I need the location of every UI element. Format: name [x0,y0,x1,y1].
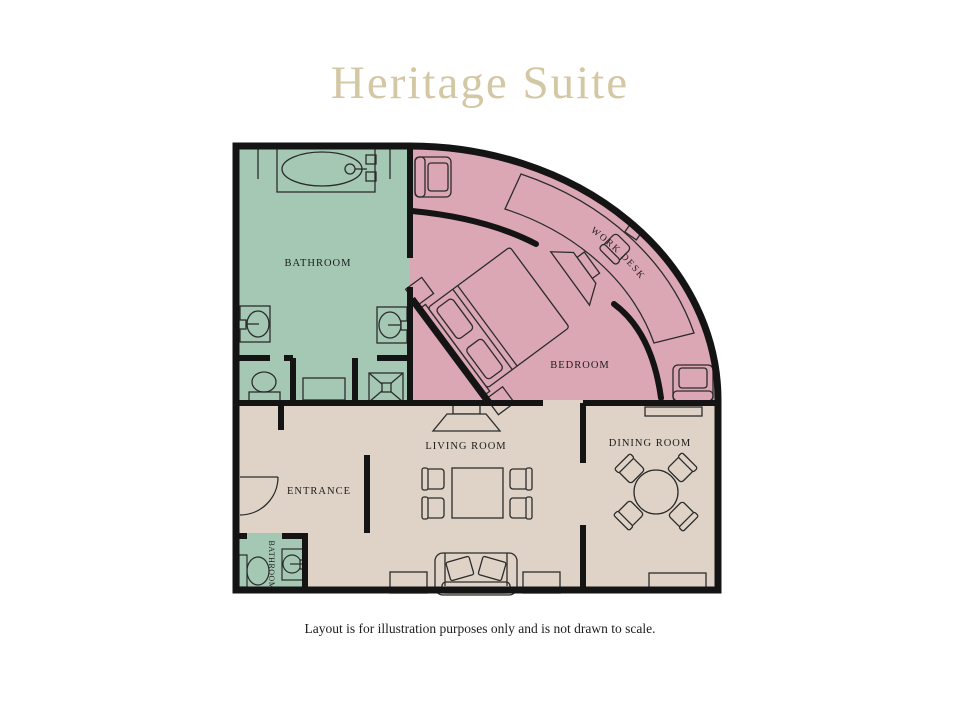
guest-bathroom-label: BATHROOM [267,541,276,590]
dining-room-label: DINING ROOM [609,438,691,449]
bedroom-armchair-bottom [673,365,713,401]
floor-plan-page: Heritage Suite [0,0,960,720]
living-chair [510,468,532,490]
floor-plan-svg: BATHROOM BEDROOM LIVING ROOM DINING ROOM… [0,0,960,720]
bathroom-label: BATHROOM [285,258,352,269]
living-chair [422,468,444,490]
bedroom-label: BEDROOM [550,360,610,371]
living-chair [422,497,444,519]
entrance-label: ENTRANCE [287,486,351,497]
living-chair [510,497,532,519]
bedroom-armchair-top [415,157,451,197]
living-room-label: LIVING ROOM [425,441,506,452]
disclaimer-caption: Layout is for illustration purposes only… [0,621,960,637]
